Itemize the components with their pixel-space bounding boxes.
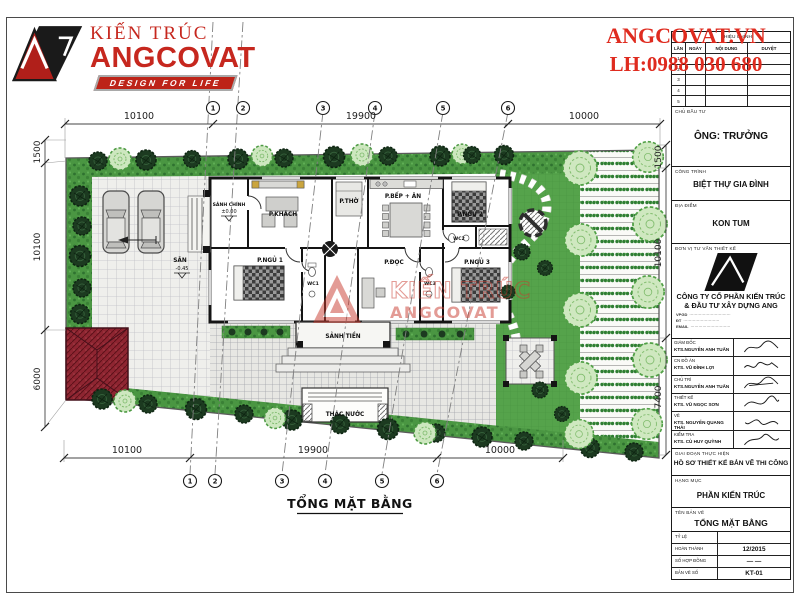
grid-bubble-2: 2 [241, 105, 246, 113]
signature-scribble [739, 432, 785, 448]
contact-overlay: ANGCOVAT.VN LH:0988 030 680 [586, 24, 786, 77]
brand-title: KIẾN TRÚC [90, 24, 256, 43]
round-planter [520, 210, 546, 236]
grid-bubble-3b: 3 [280, 478, 285, 486]
company-contacts: VPGD······························· ĐT··… [672, 312, 790, 330]
investor-label: CHỦ ĐẦU TƯ [675, 109, 706, 114]
company-diamond-logo-icon [704, 253, 758, 291]
stage-label: GIAI ĐOẠN THỰC HIỆN [675, 451, 729, 456]
grid-bubble-6: 6 [506, 105, 511, 113]
phone-text: LH:0988 030 680 [586, 52, 786, 77]
signer-role: KIỂM TRA [674, 432, 731, 437]
investor-section: CHỦ ĐẦU TƯ ÔNG: TRƯỞNG [672, 107, 790, 167]
location-label: ĐỊA ĐIỂM [675, 203, 697, 208]
label-tho: P.THỜ [339, 198, 358, 205]
website-text: ANGCOVAT.VN [586, 24, 786, 48]
signer-name: KTS. CÙ HUY QUỲNH [674, 439, 731, 444]
investor-name: ÔNG: TRƯỞNG [672, 131, 790, 142]
location-name: KON TUM [672, 219, 790, 228]
dim-bottom-2: 19900 [298, 445, 328, 456]
label-bep-an: P.BẾP + ĂN [385, 192, 421, 200]
company-name-line2: & ĐẦU TƯ XÂY DỰNG ANG [672, 301, 790, 310]
hall-column [322, 241, 338, 257]
stage-section: GIAI ĐOẠN THỰC HIỆN HỒ SƠ THIẾT KẾ BẢN V… [672, 449, 790, 476]
company-name-line1: CÔNG TY CỔ PHẦN KIẾN TRÚC [672, 292, 790, 301]
category-section: HẠNG MỤC PHẦN KIẾN TRÚC [672, 476, 790, 508]
contact-label: VPGD [676, 312, 687, 317]
car-2 [138, 191, 164, 253]
revision-row-num: 4 [672, 85, 685, 96]
signer-row: THIẾT KẾKTS. VŨ NGỌC SƠN [672, 394, 790, 412]
patio [503, 335, 557, 387]
brand-tagline: DESIGN FOR LIFE [93, 75, 237, 91]
meta-row: BẢN VẼ SỐ KT-01 [672, 568, 790, 580]
contact-value: ······························ [690, 324, 730, 329]
dim-right-1: 1500 [654, 145, 664, 168]
revision-row-num: 5 [672, 95, 685, 106]
signer-name: KTS. NGUYỄN QUANG THÁI [674, 420, 731, 430]
dim-top-2: 19900 [346, 111, 376, 122]
location-section: ĐỊA ĐIỂM KON TUM [672, 201, 790, 244]
signer-name: KTS. VŨ NGỌC SƠN [674, 402, 731, 407]
grid-bubble-1: 1 [211, 105, 216, 113]
dim-left-2: 10100 [33, 232, 43, 261]
label-san-level: -0.45 [176, 266, 189, 272]
consultant-label: ĐƠN VỊ TƯ VẤN THIẾT KẾ [675, 246, 736, 251]
company-logo: KIẾN TRÚC ANGCOVAT DESIGN FOR LIFE [12, 22, 242, 92]
grid-bubble-4b: 4 [323, 478, 328, 486]
dim-bottom-3: 10000 [485, 445, 515, 456]
sheet-label: TÊN BẢN VẼ [675, 510, 704, 515]
title-block: HIỆU CHỈNH LẦN NGÀY NỘI DUNG DUYỆT 1 2 3… [671, 31, 791, 580]
signature-scribble [739, 376, 785, 392]
main-entry-steps [188, 190, 210, 253]
plan-title: TỔNG MẶT BẰNG [287, 494, 413, 511]
grid-bubble-1b: 1 [188, 478, 193, 486]
project-name: BIỆT THỰ GIA ĐÌNH [672, 180, 790, 189]
stage-value: HỒ SƠ THIẾT KẾ BẢN VẼ THI CÔNG [672, 460, 790, 467]
category-value: PHẦN KIẾN TRÚC [672, 491, 790, 500]
signer-name: KTS. VŨ ĐÌNH LỢI [674, 365, 731, 370]
meta-label: TỶ LỆ [672, 532, 718, 543]
signature-scribble [739, 395, 785, 411]
label-san: SÂN [173, 257, 187, 264]
signature-scribble [739, 413, 785, 429]
project-label: CÔNG TRÌNH [675, 169, 706, 174]
grid-bubble-6b: 6 [435, 478, 440, 486]
signer-role: CHỦ TRÌ [674, 377, 731, 382]
label-wc2: WC2 [453, 236, 465, 242]
signer-role: CN ĐỒ ÁN [674, 358, 731, 363]
signer-role: VẼ [674, 413, 731, 418]
signer-role: GIÁM ĐỐC [674, 340, 731, 345]
dim-right-2: 10100 [654, 238, 664, 267]
meta-label: SỐ HỢP ĐỒNG [672, 556, 718, 567]
consultant-section: ĐƠN VỊ TƯ VẤN THIẾT KẾ CÔNG TY CỔ PHẦN K… [672, 244, 790, 339]
drawing-sheet: 1 2 3 4 5 6 1 2 3 4 5 6 [0, 0, 799, 600]
car-1 [103, 191, 129, 253]
signer-row: CHỦ TRÌKTS.NGUYỄN ANH TUẤN [672, 376, 790, 394]
angcovat-logo-icon [12, 22, 84, 86]
grid-bubbles-bottom: 1 2 3 4 5 6 [184, 475, 444, 488]
signer-name: KTS.NGUYỄN ANH TUẤN [674, 347, 731, 352]
meta-value: — — [718, 556, 790, 567]
sheet-name-section: TÊN BẢN VẼ TỔNG MẶT BẰNG [672, 508, 790, 532]
meta-row: TỶ LỆ [672, 532, 790, 544]
label-ngu2: P.NGỦ 2 [457, 210, 483, 218]
signer-row: GIÁM ĐỐCKTS.NGUYỄN ANH TUẤN [672, 339, 790, 357]
project-section: CÔNG TRÌNH BIỆT THỰ GIA ĐÌNH [672, 167, 790, 201]
dim-top-3: 10000 [569, 111, 599, 122]
grid-bubble-3: 3 [321, 105, 326, 113]
signer-name: KTS.NGUYỄN ANH TUẤN [674, 384, 731, 389]
label-khach: P.KHÁCH [269, 211, 297, 218]
meta-value: KT-01 [718, 568, 790, 580]
signer-role: THIẾT KẾ [674, 395, 731, 400]
label-wc1: WC1 [307, 281, 319, 287]
label-thac-nuoc: THÁC NƯỚC [326, 411, 365, 418]
contact-label: EMAIL [676, 324, 688, 329]
meta-value [718, 532, 790, 543]
meta-row: SỐ HỢP ĐỒNG — — [672, 556, 790, 568]
watermark-line1: KIẾN TRÚC [390, 275, 531, 304]
category-label: HẠNG MỤC [675, 478, 702, 483]
dim-top-1: 10100 [124, 111, 154, 122]
dim-left-3: 6000 [33, 367, 43, 390]
grid-bubble-2b: 2 [213, 478, 218, 486]
meta-value: 12/2015 [718, 544, 790, 555]
meta-row: HOÀN THÀNH 12/2015 [672, 544, 790, 556]
grid-bubble-5b: 5 [380, 478, 385, 486]
signer-row: CN ĐỒ ÁNKTS. VŨ ĐÌNH LỢI [672, 357, 790, 375]
meta-label: BẢN VẼ SỐ [672, 568, 718, 580]
label-ngu1: P.NGỦ 1 [257, 256, 283, 264]
label-doc: P.ĐỌC [384, 260, 403, 266]
dim-right-3: 7400 [654, 385, 664, 408]
brand-name: ANGCOVAT [90, 43, 256, 73]
label-sanh-chinh-level: ±0.00 [221, 209, 236, 215]
contact-label: ĐT [676, 318, 681, 323]
signer-row: KIỂM TRAKTS. CÙ HUY QUỲNH [672, 431, 790, 449]
contact-value: ··························· [683, 318, 719, 323]
grid-bubble-5: 5 [441, 105, 446, 113]
signature-scribble [739, 358, 785, 374]
dim-bottom-1: 10100 [112, 445, 142, 456]
meta-section: TỶ LỆ HOÀN THÀNH 12/2015 SỐ HỢP ĐỒNG — —… [672, 532, 790, 580]
watermark-line2: ANGCOVAT [390, 303, 499, 322]
signer-row: VẼKTS. NGUYỄN QUANG THÁI [672, 412, 790, 430]
contact-value: ······························· [689, 312, 730, 317]
signature-scribble [739, 340, 785, 356]
sheet-value: TỔNG MẶT BẰNG [672, 518, 790, 528]
label-ngu3: P.NGỦ 3 [464, 258, 490, 266]
meta-label: HOÀN THÀNH [672, 544, 718, 555]
outbuilding-red [66, 328, 128, 400]
signers-section: GIÁM ĐỐCKTS.NGUYỄN ANH TUẤN CN ĐỒ ÁNKTS.… [672, 339, 790, 449]
dim-left-1: 1500 [33, 140, 43, 163]
